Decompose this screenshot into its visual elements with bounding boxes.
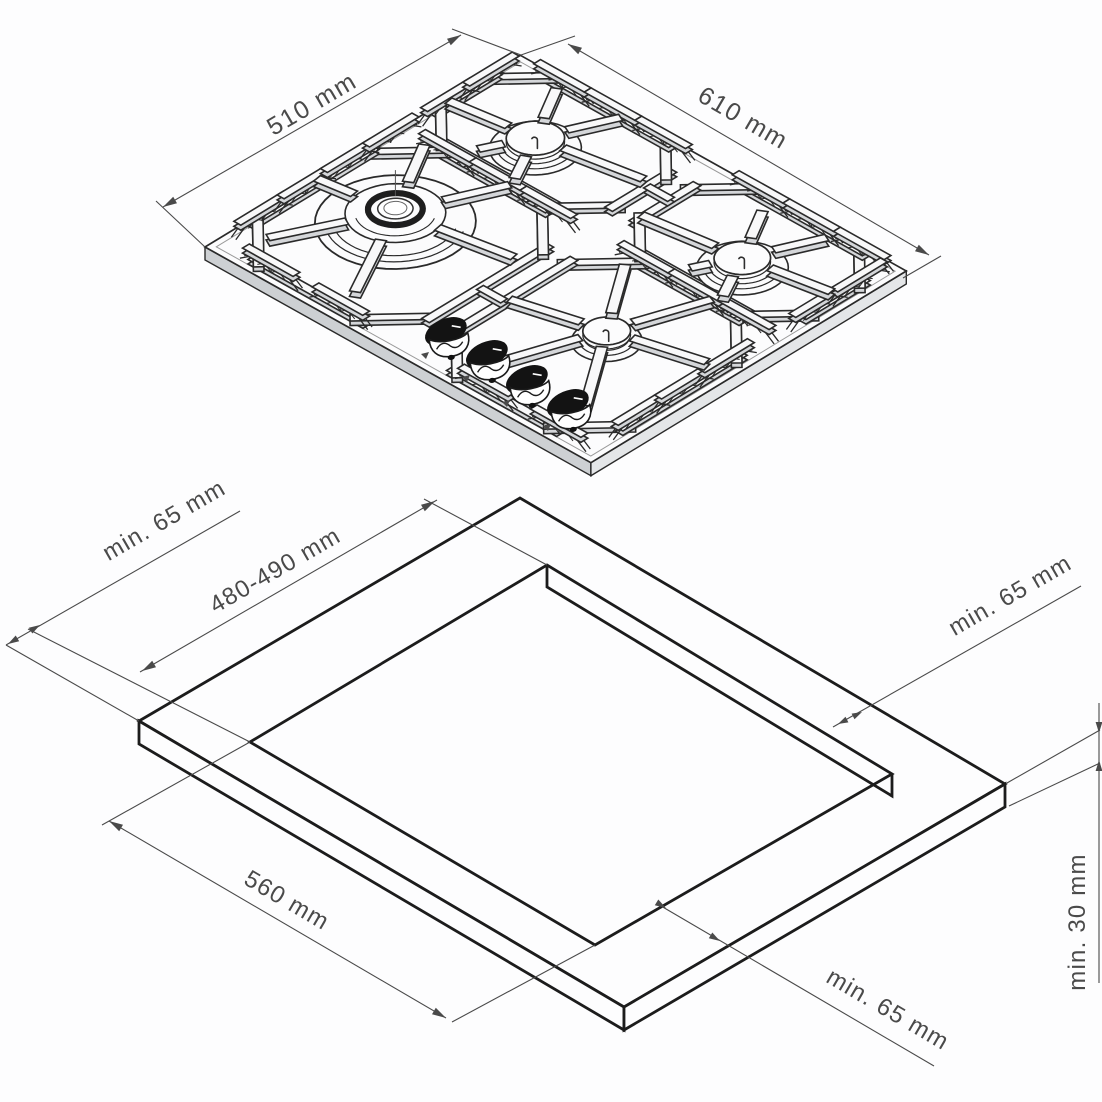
svg-text:min. 30 mm: min. 30 mm <box>1064 853 1091 990</box>
